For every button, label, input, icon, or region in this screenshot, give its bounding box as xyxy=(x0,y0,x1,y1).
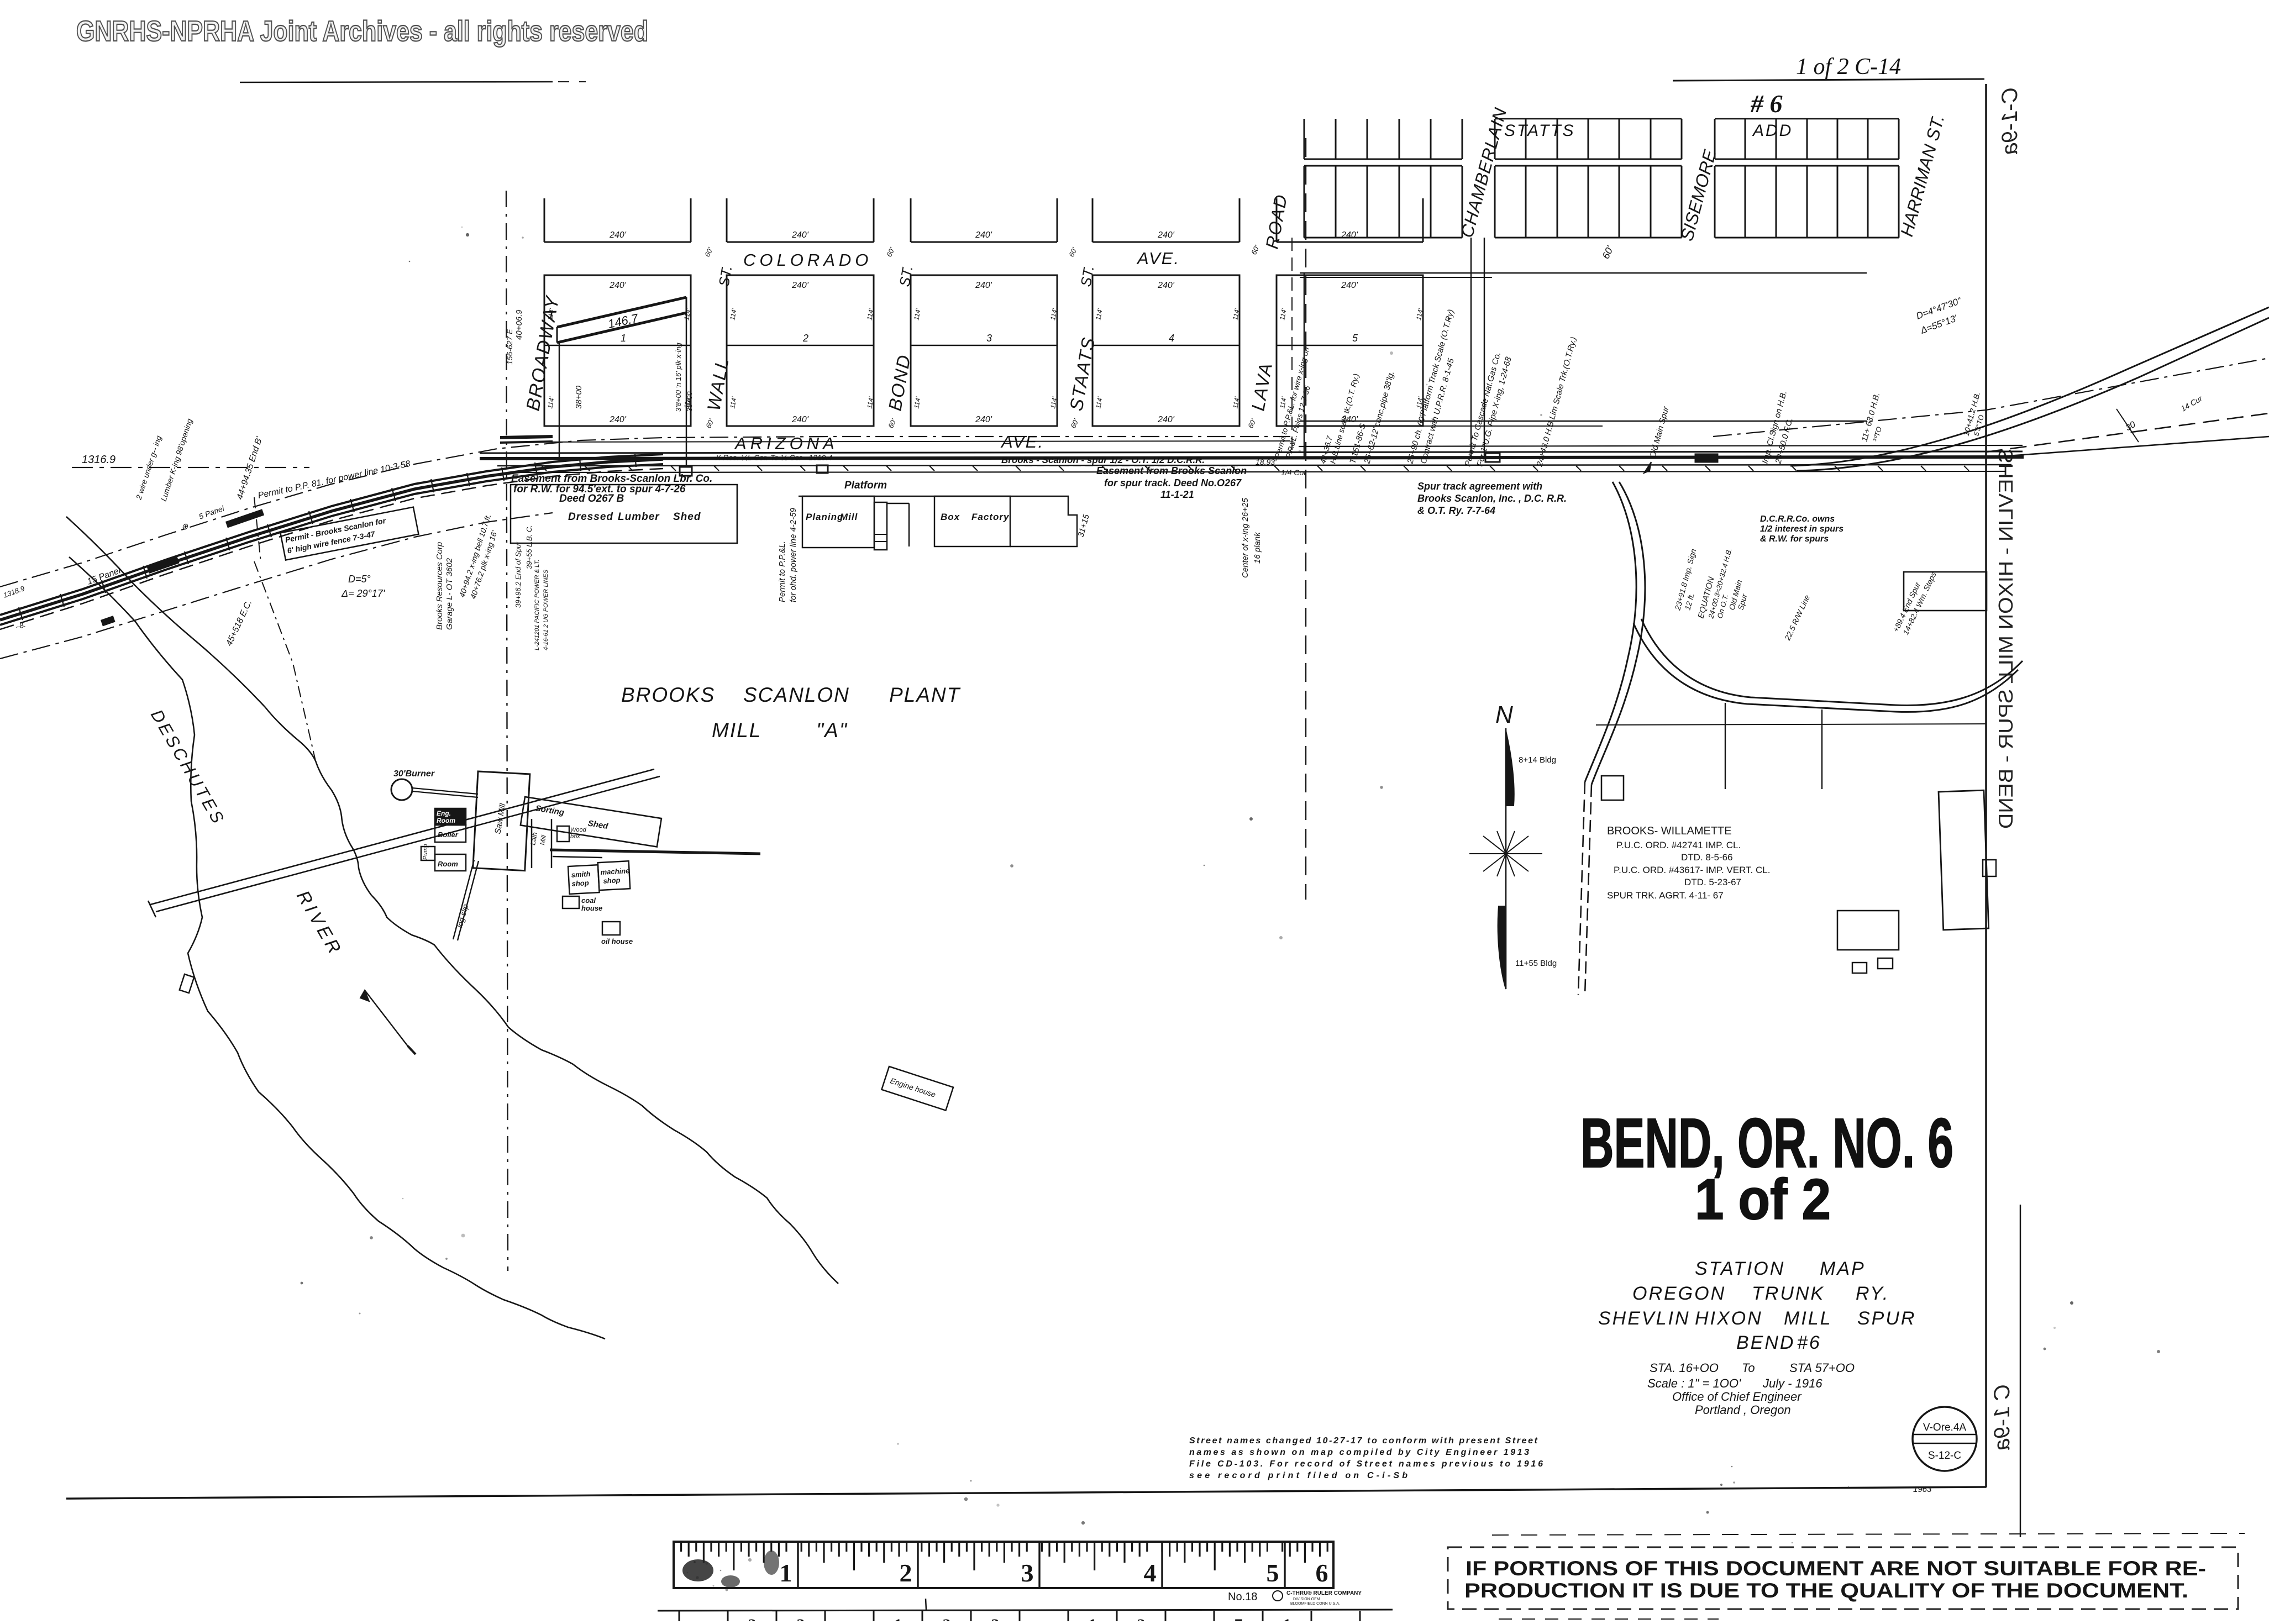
svg-text:To: To xyxy=(1742,1361,1755,1375)
svg-text:1316.9: 1316.9 xyxy=(82,454,115,466)
svg-text:C-THRU® RULER COMPANY: C-THRU® RULER COMPANY xyxy=(1286,1590,1362,1596)
svg-text:OREGON: OREGON xyxy=(1632,1283,1726,1304)
svg-text:C 1-9a: C 1-9a xyxy=(1990,1384,2014,1450)
svg-text:shop: shop xyxy=(603,876,621,885)
svg-text:SPUR TRK. AGRT. 4-11- 67: SPUR TRK. AGRT. 4-11- 67 xyxy=(1607,890,1724,901)
svg-text:shop: shop xyxy=(571,879,589,888)
svg-text:MILL: MILL xyxy=(712,719,761,742)
svg-text:7: 7 xyxy=(1235,1616,1243,1621)
svg-text:3: 3 xyxy=(991,1616,1000,1621)
svg-text:MILL: MILL xyxy=(1784,1308,1832,1329)
svg-text:Office of Chief Engin: Office of Chief Engineer xyxy=(1672,1390,1802,1404)
svg-text:DIVISION OEM: DIVISION OEM xyxy=(1293,1597,1320,1601)
svg-text:STA 57+OO: STA 57+OO xyxy=(1789,1361,1855,1375)
svg-text:2: 2 xyxy=(900,1559,912,1587)
svg-text:18.93': 18.93' xyxy=(1256,458,1277,466)
svg-text:RY.: RY. xyxy=(1856,1283,1889,1304)
svg-text:40+06.9: 40+06.9 xyxy=(514,309,524,340)
svg-text:1/2 interest in spurs: 1/2 interest in spurs xyxy=(1760,524,1843,534)
svg-text:1/4 Cor: 1/4 Cor xyxy=(1281,468,1307,477)
svg-text:4-16-61 2 UG POWER LINES: 4-16-61 2 UG POWER LINES xyxy=(543,569,549,650)
svg-text:1: 1 xyxy=(1089,1616,1097,1621)
svg-text:3: 3 xyxy=(797,1616,805,1621)
svg-text:5: 5 xyxy=(1352,333,1358,344)
svg-text:July - 1916: July - 1916 xyxy=(1762,1376,1822,1390)
svg-text:240': 240' xyxy=(609,281,627,290)
svg-text:Box: Box xyxy=(941,512,960,522)
svg-text:3: 3 xyxy=(1021,1559,1034,1587)
svg-text:2: 2 xyxy=(802,333,808,344)
svg-text:3: 3 xyxy=(986,333,992,344)
svg-text:P.U.C. ORD. #43617- IMP. VERT.: P.U.C. ORD. #43617- IMP. VERT. CL. xyxy=(1614,865,1770,875)
svg-text:39+55 L.B. C.: 39+55 L.B. C. xyxy=(525,525,533,569)
svg-text:D=5°: D=5° xyxy=(348,574,371,585)
svg-text:N: N xyxy=(1495,701,1513,728)
svg-text:#6: #6 xyxy=(1797,1332,1821,1353)
svg-text:16 plank: 16 plank xyxy=(1253,532,1262,564)
svg-text:AVE.: AVE. xyxy=(1136,249,1180,268)
svg-text:Mill: Mill xyxy=(840,512,858,522)
svg-text:240': 240' xyxy=(975,230,992,240)
svg-text:1: 1 xyxy=(1283,1616,1291,1621)
svg-text:240': 240' xyxy=(609,230,627,240)
svg-text:Brooks Resources Corp: Brooks Resources Corp xyxy=(435,542,444,630)
svg-text:D.C.R.R.Co. owns: D.C.R.R.Co. owns xyxy=(1760,514,1835,524)
svg-text:PLANT: PLANT xyxy=(889,684,961,706)
svg-text:GNRHS-NPRHA Joint Archives - a: GNRHS-NPRHA Joint Archives - all rights … xyxy=(76,15,648,48)
svg-text:BROOKS: BROOKS xyxy=(621,684,715,706)
svg-text:IF PORTIONS OF THIS DOCUMENT A: IF PORTIONS OF THIS DOCUMENT ARE NOT SUI… xyxy=(1466,1557,2206,1580)
svg-text:240': 240' xyxy=(609,415,627,424)
svg-text:BLOOMFIELD CONN U.S.A.: BLOOMFIELD CONN U.S.A. xyxy=(1290,1602,1340,1606)
svg-text:1 of 2 C-14: 1 of 2 C-14 xyxy=(1796,54,1901,80)
svg-text:# 6: # 6 xyxy=(1750,90,1783,118)
svg-text:4: 4 xyxy=(1169,333,1174,344)
svg-text:DTD. 5-23-67: DTD. 5-23-67 xyxy=(1684,877,1741,887)
svg-text:2: 2 xyxy=(748,1616,757,1621)
svg-text:machine: machine xyxy=(600,866,629,876)
svg-text:30'Burner: 30'Burner xyxy=(393,769,435,779)
svg-text:Spur track agreement with: Spur track agreement with xyxy=(1417,481,1542,492)
svg-text:for ohd. power line 4-2-59: for ohd. power line 4-2-59 xyxy=(789,507,798,602)
svg-text:240': 240' xyxy=(1341,230,1358,240)
svg-text:11+55 Bldg: 11+55 Bldg xyxy=(1515,959,1557,968)
svg-text:coal: coal xyxy=(581,896,596,905)
svg-text:smith: smith xyxy=(571,870,590,879)
svg-text:Room: Room xyxy=(438,860,458,868)
svg-text:Easement from Brooks Scanlo: Easement from Brooks Scanlon xyxy=(1096,465,1247,476)
svg-text:240': 240' xyxy=(1157,230,1175,240)
svg-text:Center of x-ing 26+25: Center of x-ing 26+25 xyxy=(1241,498,1250,578)
svg-text:11-1-21: 11-1-21 xyxy=(1160,489,1194,500)
svg-text:Brooks Scanlon, Inc. , D.C. R: Brooks Scanlon, Inc. , D.C. R.R. xyxy=(1417,493,1567,504)
svg-text:Brooks - Scanlon - spur 1/2 -: Brooks - Scanlon - spur 1/2 - O.T. 1/2 D… xyxy=(1001,455,1205,465)
svg-text:240': 240' xyxy=(791,230,809,240)
svg-text:38+00: 38+00 xyxy=(685,391,694,412)
svg-text:STATTS: STATTS xyxy=(1504,122,1575,140)
svg-text:V-Ore.4A: V-Ore.4A xyxy=(1923,1422,1966,1433)
svg-text:1: 1 xyxy=(894,1616,902,1621)
svg-text:& O.T. Ry. 7-7-64: & O.T. Ry. 7-7-64 xyxy=(1417,505,1495,516)
svg-text:No.18: No.18 xyxy=(1228,1591,1257,1603)
svg-text:240': 240' xyxy=(1341,281,1358,290)
svg-text:File CD-103. For reco: File CD-103. For record of Street names … xyxy=(1189,1459,1543,1469)
svg-text:6: 6 xyxy=(1316,1559,1328,1587)
svg-text:Deed O267 B: Deed O267 B xyxy=(559,493,624,504)
svg-text:Easement from Brooks-Scanlon L: Easement from Brooks-Scanlon Lbr. Co. xyxy=(511,473,712,485)
svg-text:2: 2 xyxy=(943,1616,951,1621)
svg-text:240': 240' xyxy=(975,281,992,290)
svg-text:3'8+00 'n 16' plk x-ing: 3'8+00 'n 16' plk x-ing xyxy=(674,342,682,412)
svg-text:Boiler: Boiler xyxy=(438,831,459,839)
svg-text:C-1-9a: C-1-9a xyxy=(1998,87,2022,155)
svg-text:Scale : 1" = 1OO': Scale : 1" = 1OO' xyxy=(1647,1376,1741,1390)
svg-text:Lumber: Lumber xyxy=(618,511,660,523)
svg-text:MAP: MAP xyxy=(1820,1258,1866,1279)
svg-text:STA. 16+OO: STA. 16+OO xyxy=(1650,1361,1719,1375)
svg-text:SHEVLIN - HIXON MILL SPUR - BE: SHEVLIN - HIXON MILL SPUR - BEND xyxy=(1994,449,2017,829)
svg-text:SHEVLIN: SHEVLIN xyxy=(1598,1308,1690,1329)
svg-text:Factory: Factory xyxy=(971,512,1010,522)
svg-text:Permit to P.P.&L.: Permit to P.P.&L. xyxy=(778,541,787,602)
svg-text:P.U.C. ORD. #42741 IMP. CL.: P.U.C. ORD. #42741 IMP. CL. xyxy=(1616,840,1741,850)
svg-text:HIXON: HIXON xyxy=(1695,1308,1763,1329)
svg-text:& R.W. for spurs: & R.W. for spurs xyxy=(1760,534,1829,544)
svg-text:Platform: Platform xyxy=(844,480,887,491)
svg-text:oil house: oil house xyxy=(601,937,633,945)
svg-text:Pump: Pump xyxy=(422,844,429,860)
svg-text:STATION: STATION xyxy=(1695,1258,1785,1279)
svg-text:SPUR: SPUR xyxy=(1857,1308,1916,1329)
svg-text:240': 240' xyxy=(791,281,809,290)
svg-text:TRUNK: TRUNK xyxy=(1752,1283,1825,1304)
svg-text:39+96.2 End of Spur: 39+96.2 End of Spur xyxy=(514,542,522,608)
svg-text:1: 1 xyxy=(621,333,626,344)
svg-text:Shed: Shed xyxy=(673,511,701,523)
svg-text:for spur track. Deed N: for spur track. Deed No.O267 xyxy=(1104,477,1242,488)
svg-text:Planing: Planing xyxy=(806,512,843,522)
svg-text:Street names changed 10-: Street names changed 10-27-17 to conform… xyxy=(1189,1436,1538,1446)
svg-text:PRODUCTION IT IS DUE TO THE QU: PRODUCTION IT IS DUE TO THE QUALITY OF T… xyxy=(1464,1579,2188,1602)
svg-text:2: 2 xyxy=(1137,1616,1146,1621)
svg-text:Δ= 29°17': Δ= 29°17' xyxy=(341,588,385,599)
svg-text:"A": "A" xyxy=(816,719,848,742)
svg-text:BEND: BEND xyxy=(1736,1332,1795,1353)
svg-text:Portland , Oregon: Portland , Oregon xyxy=(1695,1403,1791,1417)
svg-text:240': 240' xyxy=(1157,281,1175,290)
svg-text:S-12-C: S-12-C xyxy=(1928,1450,1961,1462)
svg-text:4: 4 xyxy=(1144,1559,1157,1587)
svg-text:SCANLON: SCANLON xyxy=(743,684,850,706)
svg-text:5: 5 xyxy=(1267,1559,1279,1587)
svg-text:240': 240' xyxy=(1157,415,1175,424)
svg-text:house: house xyxy=(581,904,602,912)
svg-text:L-241201 PACIFIC POWER & LT.: L-241201 PACIFIC POWER & LT. xyxy=(534,560,540,650)
svg-text:X Res. ¼L Cor. To ¼ Cor - 1319: X Res. ¼L Cor. To ¼ Cor - 1319.4 xyxy=(715,453,832,462)
svg-text:Room: Room xyxy=(437,817,455,824)
svg-text:38+00: 38+00 xyxy=(574,385,584,409)
svg-text:Wood: Wood xyxy=(570,827,587,833)
svg-text:Garage L- OT 3602: Garage L- OT 3602 xyxy=(445,558,454,630)
svg-text:8+14 Bldg: 8+14 Bldg xyxy=(1519,755,1556,765)
svg-text:DTD. 8-5-66: DTD. 8-5-66 xyxy=(1681,852,1733,863)
svg-text:BROOKS- WILLAMETTE: BROOKS- WILLAMETTE xyxy=(1607,825,1732,837)
svg-text:1963: 1963 xyxy=(1913,1485,1932,1494)
svg-text:Dressed: Dressed xyxy=(568,511,613,523)
svg-text:240': 240' xyxy=(791,415,809,424)
svg-text:240': 240' xyxy=(975,415,992,424)
svg-text:COLORADO: COLORADO xyxy=(743,250,872,270)
svg-text:1: 1 xyxy=(780,1559,792,1587)
svg-text:ADD: ADD xyxy=(1752,122,1793,140)
svg-text:Eng.: Eng. xyxy=(437,810,451,817)
svg-text:1 of 2: 1 of 2 xyxy=(1695,1168,1831,1232)
